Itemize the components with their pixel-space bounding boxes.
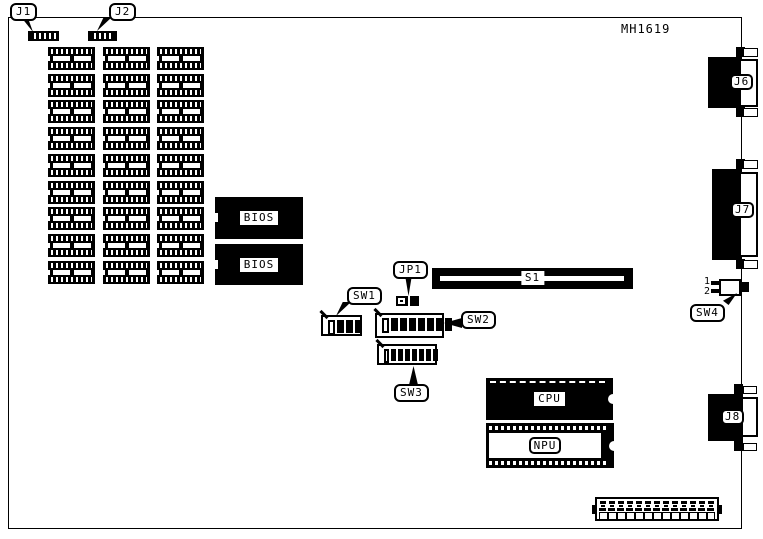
memory-chip [103, 74, 150, 97]
port-j8-bottom-tab [734, 441, 743, 451]
memory-chip [103, 47, 150, 70]
cpu-chip: CPU [486, 378, 613, 420]
memory-chip [48, 100, 95, 123]
jp1-pin1 [398, 298, 405, 304]
dip-switch-segment [436, 318, 443, 331]
npu-notch [609, 441, 614, 451]
npu-socket: NPU [486, 423, 614, 468]
callout-sw1: SW1 [347, 287, 382, 305]
memory-chip [48, 127, 95, 150]
port-j8-top-screw [743, 386, 757, 394]
callout-jp1-label: JP1 [399, 263, 422, 276]
dip-switch-segment [337, 320, 344, 333]
jp1-jumper [396, 296, 419, 306]
port-j7-top-screw [743, 160, 758, 169]
callout-j2: J2 [109, 3, 136, 21]
motherboard-diagram: MH1619 J1 J2 BIOS BIOS S1 JP1 SW1 SW2 SW… [0, 0, 763, 539]
memory-chip [103, 127, 150, 150]
sw4-edge-block [740, 282, 749, 292]
cpu-notch [608, 394, 613, 404]
memory-chip [157, 74, 204, 97]
memory-chip [157, 207, 204, 230]
memory-chip [157, 100, 204, 123]
dip-switch-segment [426, 349, 431, 361]
dip-switch-segment [418, 318, 425, 331]
npu-label: NPU [529, 437, 562, 454]
dip-switch-segment [433, 349, 438, 361]
sw4-pin2-number: 2 [704, 287, 710, 297]
memory-chip [157, 154, 204, 177]
memory-chip [103, 154, 150, 177]
memory-chip [157, 127, 204, 150]
dip-switch-segment [400, 318, 407, 331]
bottom-connector-bar [599, 508, 715, 511]
dip-switch-segment [384, 349, 389, 363]
cpu-dashed-line [490, 381, 605, 383]
callout-jp1: JP1 [393, 261, 428, 279]
memory-chip [103, 234, 150, 257]
memory-chip [48, 181, 95, 204]
s1-label: S1 [521, 271, 544, 285]
callout-sw1-label: SW1 [353, 289, 376, 302]
bios-chip-bottom: BIOS [215, 244, 303, 285]
memory-chip [103, 261, 150, 284]
sw4-pin2 [711, 289, 719, 293]
port-j7-label: J7 [731, 202, 754, 218]
memory-chip [48, 234, 95, 257]
port-j8-bottom-screw [743, 443, 757, 451]
bottom-connector-pins-row [600, 501, 714, 504]
dip-switch-segment [405, 349, 410, 361]
memory-chip [103, 181, 150, 204]
callout-sw4: SW4 [690, 304, 725, 322]
sw4-switch [719, 279, 741, 296]
memory-chip [157, 47, 204, 70]
dip-switch-segment [346, 320, 353, 333]
callout-sw3: SW3 [394, 384, 429, 402]
memory-chip [48, 47, 95, 70]
memory-chip [157, 234, 204, 257]
npu-body: NPU [489, 433, 601, 458]
s1-switch: S1 [432, 268, 633, 289]
memory-chip [48, 207, 95, 230]
memory-chip [48, 154, 95, 177]
port-j8-label: J8 [721, 409, 744, 425]
memory-chip [48, 74, 95, 97]
callout-sw3-label: SW3 [400, 386, 423, 399]
callout-sw2: SW2 [461, 311, 496, 329]
jp1-gap [408, 296, 410, 306]
dip-switch-sw3 [377, 344, 437, 365]
dip-switch-segment [328, 320, 335, 335]
port-j7-bottom-screw [743, 260, 758, 269]
memory-chip [48, 261, 95, 284]
port-j6-bottom-screw [743, 108, 758, 117]
part-number-text: MH1619 [621, 22, 670, 36]
dip-switch-segment [391, 318, 398, 331]
connector-j1 [28, 31, 59, 41]
cpu-label: CPU [534, 392, 565, 406]
bottom-connector-terminals [599, 512, 715, 520]
dip-switch-segment [409, 318, 416, 331]
dip-switch-segment [391, 349, 396, 361]
dip-switch-segment [382, 318, 389, 333]
memory-chip [157, 181, 204, 204]
dip-switch-sw1 [321, 315, 362, 336]
bottom-connector-pins-row2 [601, 505, 713, 507]
dip-switch-sw2 [375, 313, 444, 338]
dip-switch-segment [398, 349, 403, 361]
port-j6-top-screw [743, 48, 758, 57]
memory-chip [103, 100, 150, 123]
callout-sw2-label: SW2 [467, 313, 490, 326]
port-j6-label: J6 [730, 74, 753, 90]
dip-switch-segment [355, 320, 362, 333]
bios-top-label: BIOS [240, 211, 279, 225]
memory-chip [157, 261, 204, 284]
callout-j2-label: J2 [115, 5, 130, 18]
port-j8-top-tab [734, 384, 743, 394]
callout-j1: J1 [10, 3, 37, 21]
dip-switch-segment [419, 349, 424, 361]
bios-bottom-label: BIOS [240, 258, 279, 272]
callout-j1-label: J1 [16, 5, 31, 18]
sw4-pin1 [711, 281, 719, 285]
connector-j2 [88, 31, 117, 41]
bios-chip-top: BIOS [215, 197, 303, 239]
callout-sw4-label: SW4 [696, 306, 719, 319]
memory-chip [103, 207, 150, 230]
bottom-edge-connector [595, 497, 719, 521]
dip-switch-segment [427, 318, 434, 331]
dip-switch-segment [412, 349, 417, 361]
